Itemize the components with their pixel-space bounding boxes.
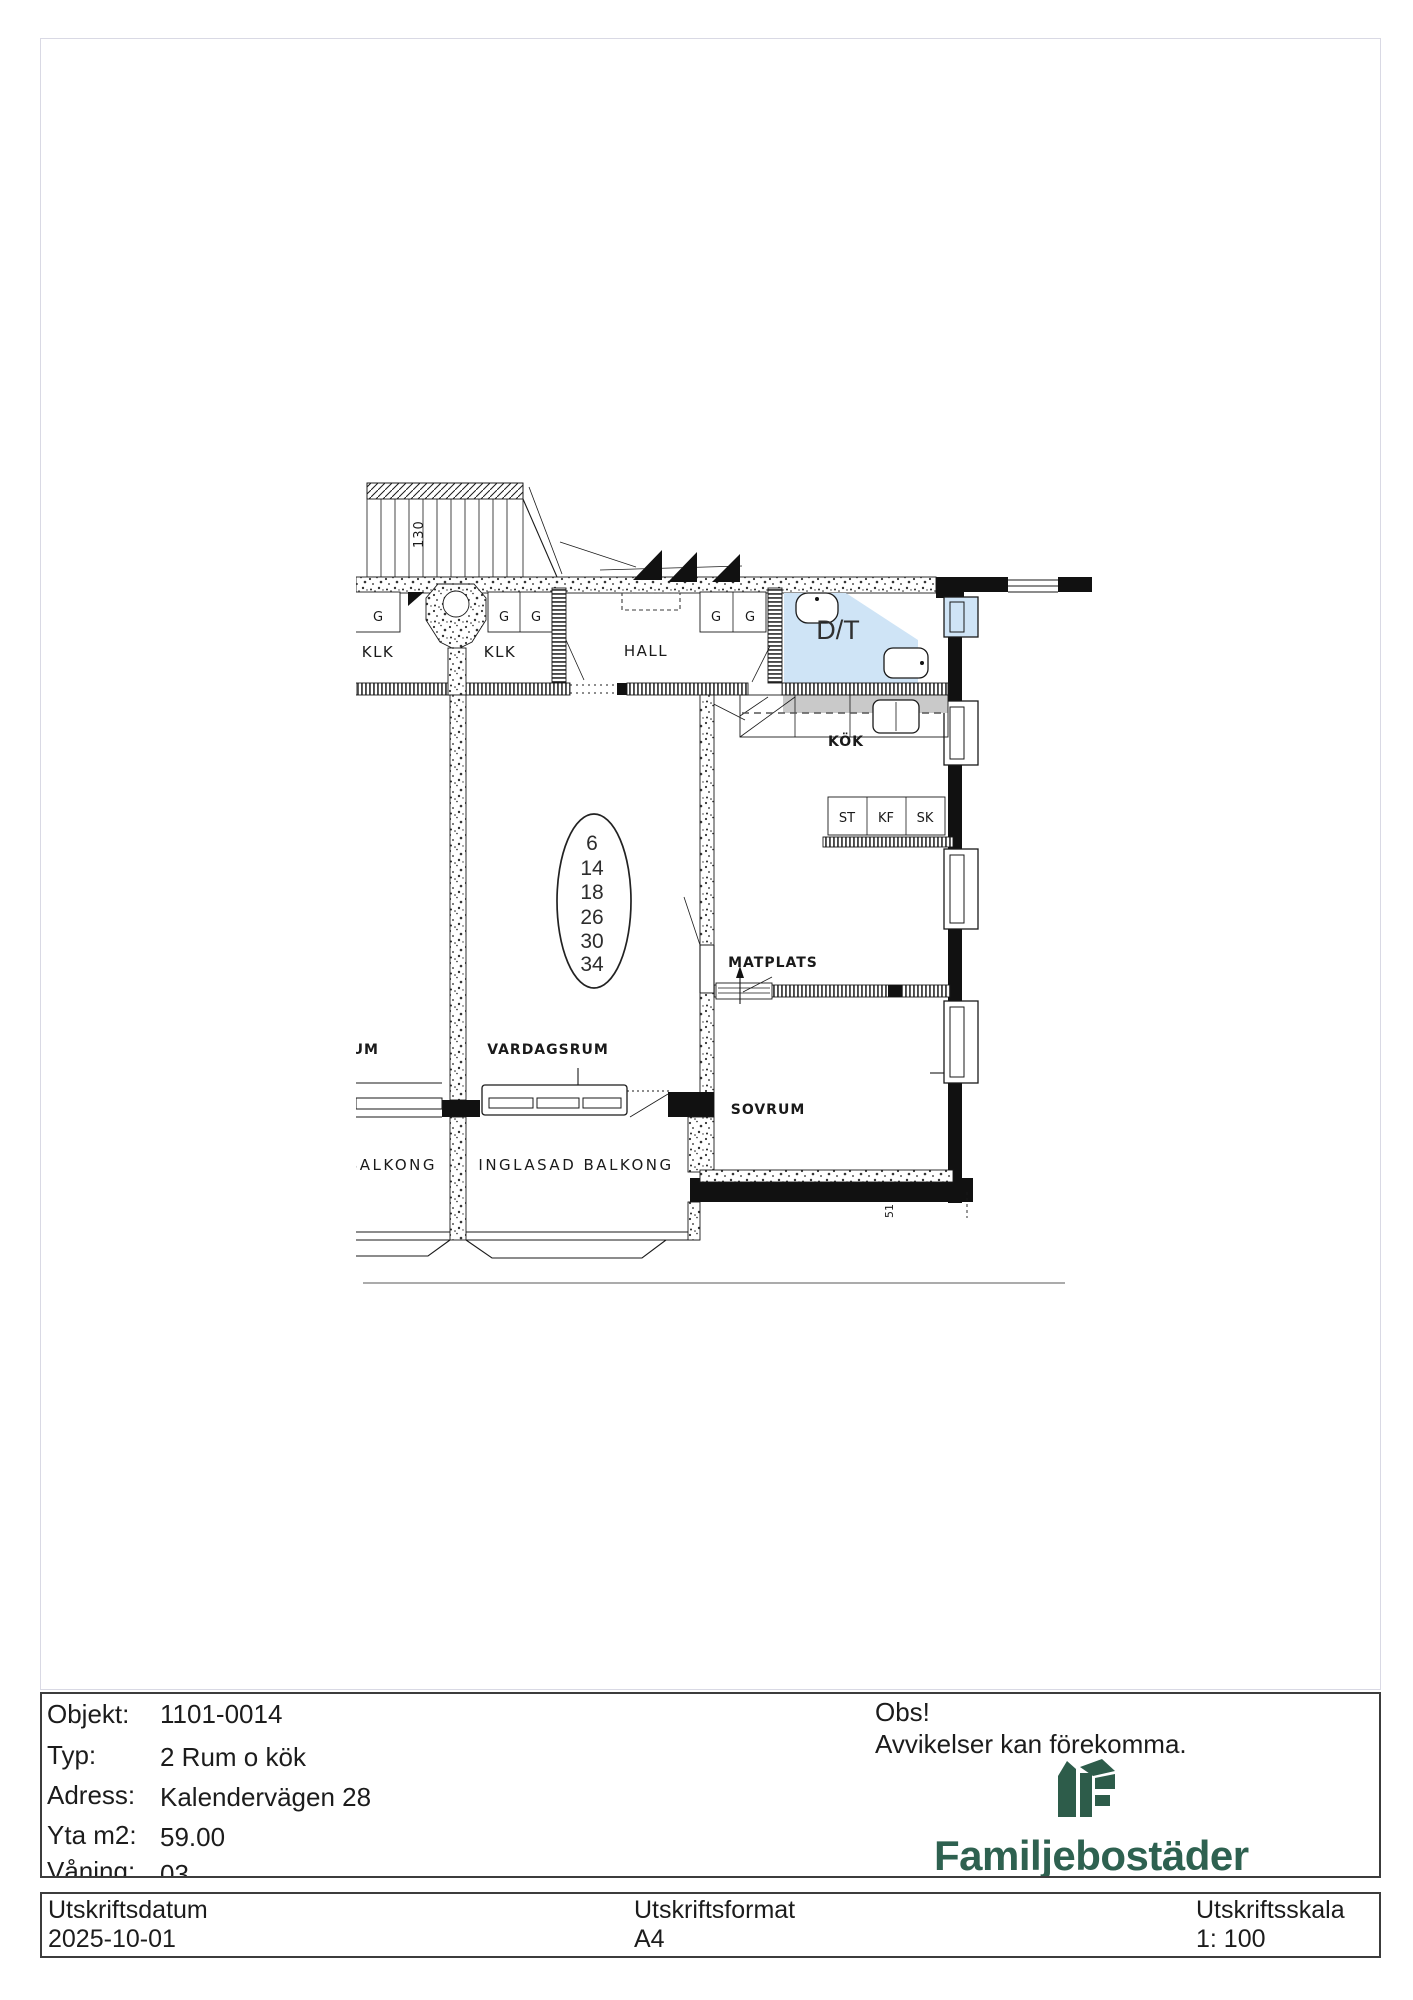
print-col-format: Utskriftsformat A4 [634, 1896, 795, 1954]
apartment-number: 34 [580, 953, 604, 976]
info-value: 1101-0014 [160, 1699, 282, 1730]
entry-door-swing [633, 550, 662, 580]
room-label-matplats: MATPLATS [728, 955, 818, 971]
apartment-number: 18 [580, 881, 603, 904]
corner-dimension: 51 [883, 1204, 896, 1218]
room-label-vardagsrum: VARDAGSRUM [487, 1042, 609, 1058]
company-logo: Familjebostäder [934, 1754, 1234, 1878]
hall-mat [622, 593, 680, 610]
info-label: Typ: [47, 1740, 96, 1771]
closet-row: 2 [350, 584, 782, 683]
info-label: Adress: [47, 1780, 135, 1811]
window [944, 597, 978, 637]
closet-label: G [531, 610, 541, 625]
print-col-scale: Utskriftsskala 1: 100 [1196, 1896, 1345, 1954]
floorplan-page: 130 [0, 0, 1413, 2000]
apartment-numbers: 6 14 18 26 30 34 [557, 814, 631, 988]
brand-name: Familjebostäder [934, 1832, 1234, 1878]
neighbour-wall [442, 648, 480, 1240]
closet-label: G [745, 610, 755, 625]
kitchen-counter [783, 695, 948, 713]
room-label-kok: KÖK [828, 732, 864, 750]
window [944, 1001, 978, 1083]
closet-label: G [499, 610, 509, 625]
notice: Obs! Avvikelser kan förekomma. [875, 1696, 1187, 1760]
info-value: 03 [160, 1859, 189, 1878]
apartment-number: 6 [586, 832, 598, 855]
apartment-number: 30 [580, 930, 603, 953]
print-info-table: Utskriftsdatum 2025-10-01 Utskriftsforma… [40, 1892, 1381, 1958]
info-label: Yta m2: [47, 1820, 137, 1851]
print-value: A4 [634, 1925, 795, 1954]
balcony-window [482, 1085, 627, 1115]
print-label: Utskriftsdatum [48, 1896, 208, 1925]
print-value: 2025-10-01 [48, 1925, 208, 1954]
room-label-sovrum: SOVRUM [731, 1102, 806, 1118]
familjebostader-house-icon [1049, 1754, 1119, 1824]
room-label-klk2: KLK [484, 643, 517, 661]
print-label: Utskriftsformat [634, 1896, 795, 1925]
dividing-wall [684, 695, 714, 1117]
print-value: 1: 100 [1196, 1925, 1345, 1954]
closet-label: G [373, 610, 383, 625]
info-label: Objekt: [47, 1699, 129, 1730]
print-col-date: Utskriftsdatum 2025-10-01 [48, 1896, 208, 1954]
window [944, 701, 978, 765]
room-label-neighbor: RUM [340, 1042, 379, 1058]
apartment-number: 26 [580, 906, 603, 929]
object-info-table: Objekt: 1101-0014 Typ: 2 Rum o kök Adres… [40, 1692, 1381, 1878]
sovrum-wall: 51 [690, 1170, 973, 1218]
room-label-hall: HALL [624, 642, 668, 660]
stair-dimension: 130 [412, 520, 427, 548]
info-value: 2 Rum o kök [160, 1742, 306, 1773]
room-label-dt: D/T [816, 615, 860, 645]
room-label-klk1: KLK [362, 643, 395, 661]
cabinet-label-st: ST [839, 811, 855, 826]
print-label: Utskriftsskala [1196, 1896, 1345, 1925]
info-value: Kalendervägen 28 [160, 1782, 371, 1813]
cabinet-label-kf: KF [878, 811, 894, 826]
info-label: Våning: [47, 1856, 135, 1878]
entry-door-swing [712, 554, 740, 582]
info-value: 59.00 [160, 1822, 225, 1853]
room-label-balkong: BALKONG [347, 1156, 437, 1174]
staircase: 130 [367, 483, 742, 577]
closet-label: G [711, 610, 721, 625]
matplats-wall [714, 966, 950, 1004]
window [944, 849, 978, 929]
cabinet-label-sk: SK [917, 811, 934, 826]
apartment-number: 14 [580, 857, 604, 880]
room-label-inglasad-balkong: INGLASAD BALKONG [478, 1156, 673, 1174]
notice-title: Obs! [875, 1696, 1187, 1728]
